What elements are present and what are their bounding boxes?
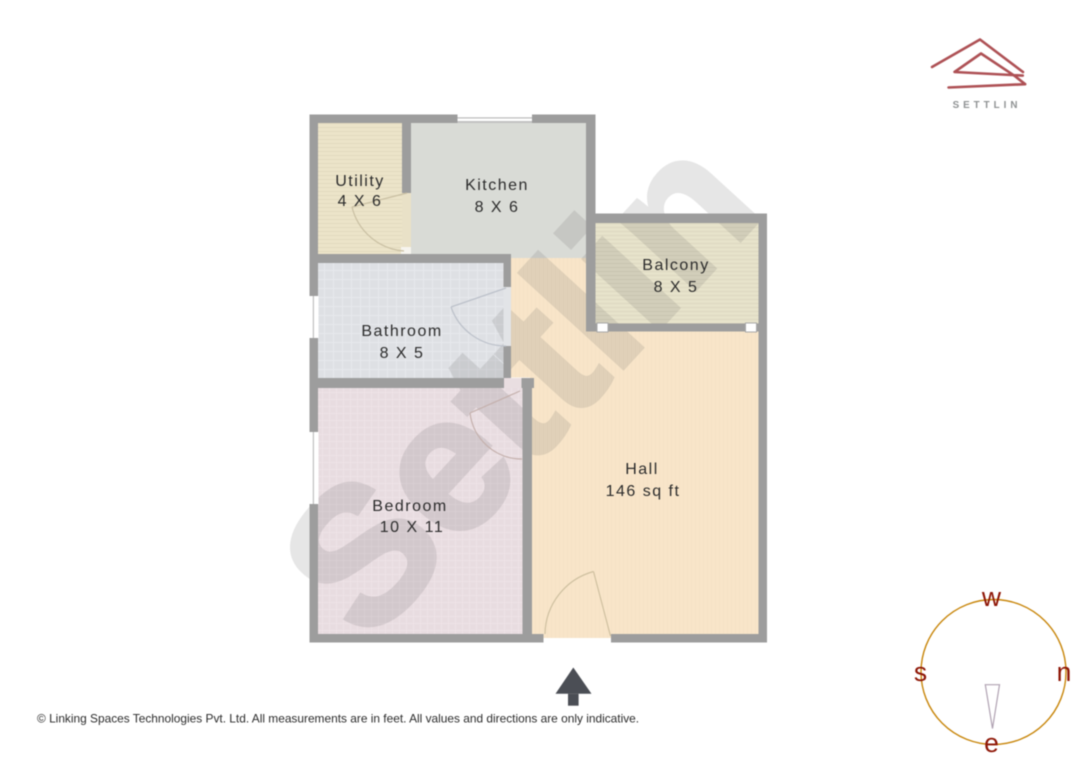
svg-text:146 sq ft: 146 sq ft xyxy=(606,483,681,500)
svg-text:s: s xyxy=(914,657,927,687)
svg-text:w: w xyxy=(981,582,1002,612)
svg-text:© Linking Spaces Technologies: © Linking Spaces Technologies Pvt. Ltd. … xyxy=(37,712,639,726)
svg-text:e: e xyxy=(984,728,999,758)
svg-text:Kitchen: Kitchen xyxy=(465,177,529,194)
svg-text:4 X 6: 4 X 6 xyxy=(338,193,383,210)
svg-text:8 X 5: 8 X 5 xyxy=(380,345,425,362)
svg-text:n: n xyxy=(1057,657,1072,687)
svg-text:Bathroom: Bathroom xyxy=(361,323,442,340)
svg-text:Bedroom: Bedroom xyxy=(372,498,447,515)
svg-text:Balcony: Balcony xyxy=(642,257,709,274)
svg-text:10 X 11: 10 X 11 xyxy=(380,519,444,536)
svg-text:8 X 5: 8 X 5 xyxy=(654,279,699,296)
svg-text:Utility: Utility xyxy=(335,173,385,190)
svg-text:SETTLIN: SETTLIN xyxy=(953,100,1022,111)
svg-text:Hall: Hall xyxy=(625,461,659,478)
svg-text:8 X 6: 8 X 6 xyxy=(475,199,520,216)
